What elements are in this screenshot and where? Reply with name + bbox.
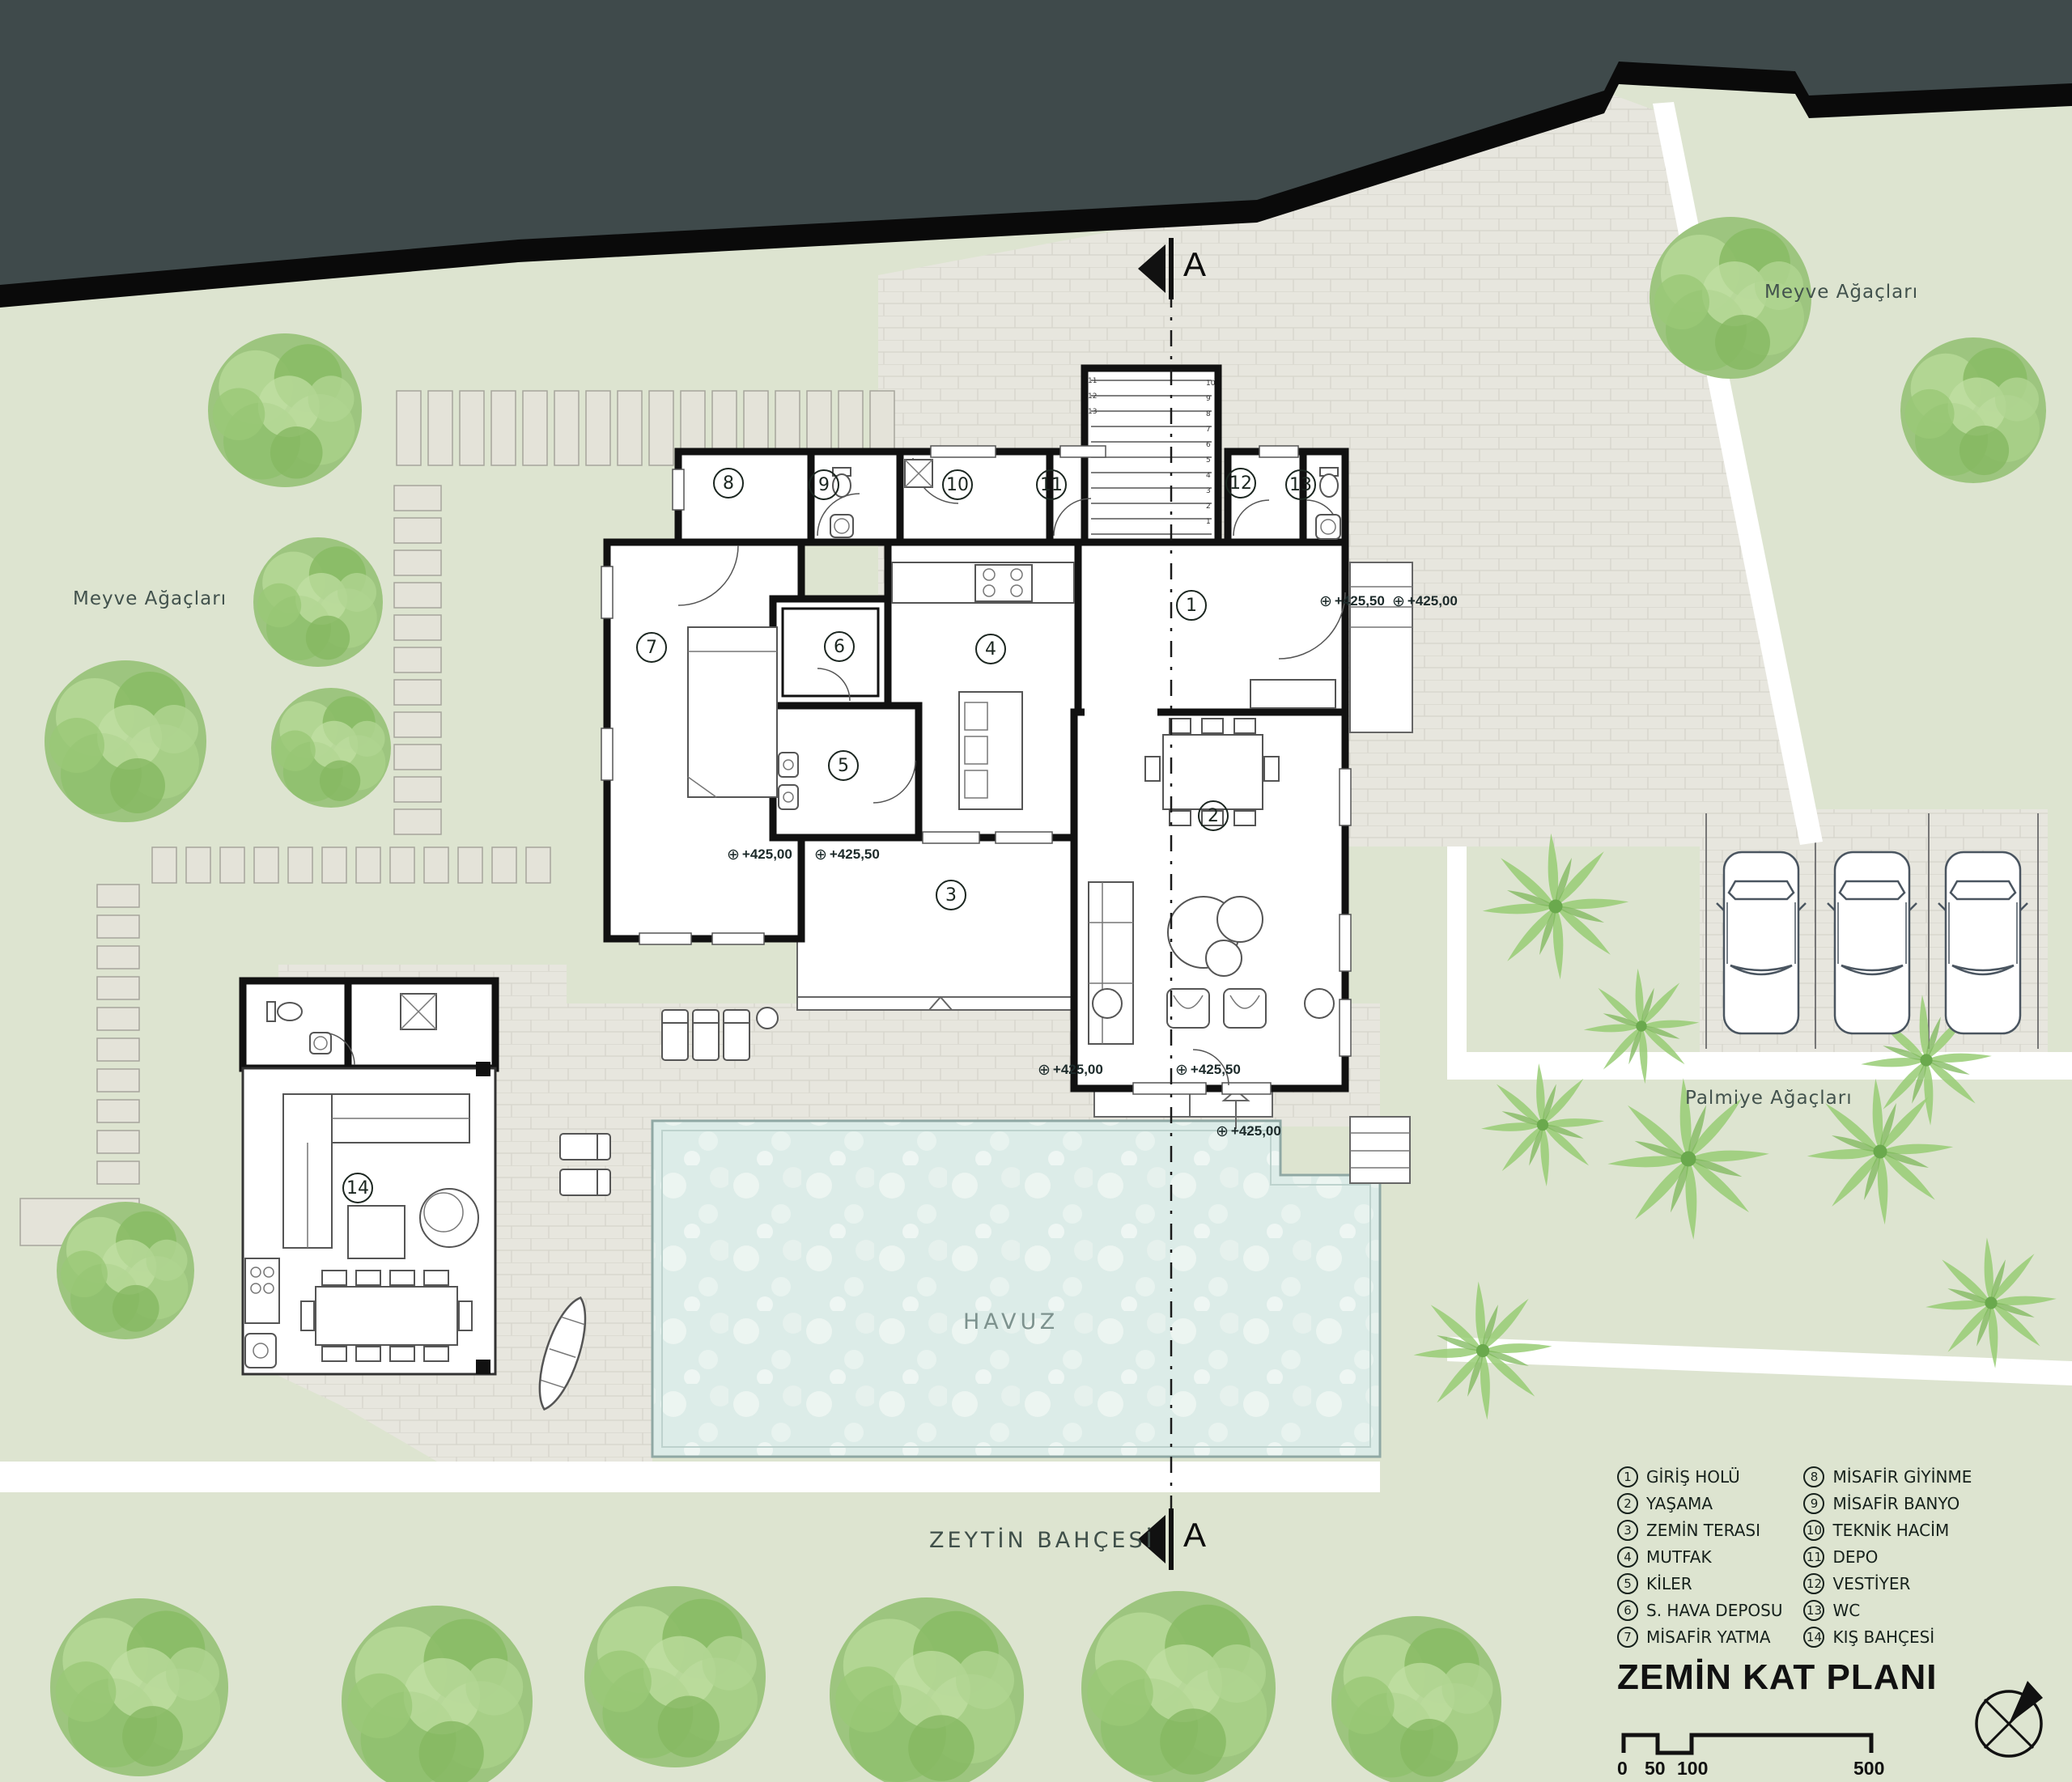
legend-item: 9MİSAFİR BANYO xyxy=(1803,1493,1972,1514)
legend-item: 12VESTİYER xyxy=(1803,1573,1972,1594)
room-circle-12: 12 xyxy=(1225,468,1256,499)
room-number: 12 xyxy=(1229,473,1252,494)
elevation-marker: ⊕+425,50 xyxy=(1319,593,1385,609)
legend-number: 12 xyxy=(1803,1573,1824,1594)
legend-label: MUTFAK xyxy=(1646,1547,1712,1567)
scale-tick-50: 50 xyxy=(1645,1758,1666,1780)
legend-label: YAŞAMA xyxy=(1646,1494,1713,1513)
legend-label: KIŞ BAHÇESİ xyxy=(1832,1627,1934,1647)
scale-tick-500: 500 xyxy=(1853,1758,1884,1780)
legend-label: MİSAFİR GİYİNME xyxy=(1832,1467,1972,1487)
legend-number: 1 xyxy=(1617,1466,1638,1487)
legend-item: 7MİSAFİR YATMA xyxy=(1617,1627,1782,1648)
stair-tread-number: 8 xyxy=(1206,410,1211,418)
stair-tread-numbers: 12345678910111213 xyxy=(1085,371,1218,545)
legend-item: 5KİLER xyxy=(1617,1573,1782,1594)
legend-label: S. HAVA DEPOSU xyxy=(1646,1601,1782,1620)
stair-tread-number: 4 xyxy=(1206,472,1211,480)
stair-tread-number: 13 xyxy=(1088,408,1097,416)
room-circle-5: 5 xyxy=(828,750,859,781)
legend-number: 14 xyxy=(1803,1627,1824,1648)
room-number: 13 xyxy=(1289,475,1312,495)
legend-item: 13WC xyxy=(1803,1600,1972,1621)
legend-item: 6S. HAVA DEPOSU xyxy=(1617,1600,1782,1621)
room-number: 1 xyxy=(1186,596,1197,616)
site-plan-page: { "title": "ZEMİN KAT PLANI", "labels": … xyxy=(0,0,2072,1782)
room-circle-7: 7 xyxy=(636,632,667,663)
room-number: 5 xyxy=(838,756,849,776)
legend-label: MİSAFİR BANYO xyxy=(1832,1494,1959,1513)
legend-number: 7 xyxy=(1617,1627,1638,1648)
room-circle-11: 11 xyxy=(1036,469,1067,500)
room-circle-13: 13 xyxy=(1285,469,1316,500)
legend-item: 10TEKNİK HACİM xyxy=(1803,1520,1972,1541)
room-circle-1: 1 xyxy=(1176,590,1207,621)
stair-tread-number: 11 xyxy=(1088,377,1097,385)
room-circle-8: 8 xyxy=(713,468,744,499)
page-title: ZEMİN KAT PLANI xyxy=(1617,1657,1938,1698)
room-circle-2: 2 xyxy=(1198,800,1229,831)
stair-tread-number: 3 xyxy=(1206,487,1211,495)
stair-tread-number: 10 xyxy=(1206,380,1215,388)
label-palm-trees: Palmiye Ağaçları xyxy=(1685,1088,1853,1109)
label-pool: HAVUZ xyxy=(963,1309,1059,1334)
elevation-target-icon: ⊕ xyxy=(1216,1124,1229,1139)
pool xyxy=(652,1121,1380,1457)
elevation-target-icon: ⊕ xyxy=(1038,1063,1051,1078)
stair-tread-number: 9 xyxy=(1206,395,1211,403)
legend-item: 14KIŞ BAHÇESİ xyxy=(1803,1627,1972,1648)
legend-item: 3ZEMİN TERASI xyxy=(1617,1520,1782,1541)
legend-number: 6 xyxy=(1617,1600,1638,1621)
room-number: 6 xyxy=(834,637,845,657)
scale-tick-0: 0 xyxy=(1617,1758,1628,1780)
label-fruit-trees-left: Meyve Ağaçları xyxy=(73,588,227,609)
legend-item: 11DEPO xyxy=(1803,1547,1972,1568)
stair-tread-number: 12 xyxy=(1088,392,1097,401)
room-number: 10 xyxy=(946,475,969,495)
stair-tread-number: 1 xyxy=(1206,518,1211,526)
legend-item: 8MİSAFİR GİYİNME xyxy=(1803,1466,1972,1487)
elevation-target-icon: ⊕ xyxy=(814,847,827,863)
elevation-target-icon: ⊕ xyxy=(1175,1063,1188,1078)
stair-tread-number: 6 xyxy=(1206,441,1211,449)
legend-label: MİSAFİR YATMA xyxy=(1646,1627,1771,1647)
legend-item: 4MUTFAK xyxy=(1617,1547,1782,1568)
legend-column-left: 1GİRİŞ HOLÜ 2YAŞAMA 3ZEMİN TERASI 4MUTFA… xyxy=(1617,1466,1782,1648)
elevation-value: +425,00 xyxy=(742,846,792,863)
room-circle-4: 4 xyxy=(975,634,1006,664)
section-letter-top: A xyxy=(1183,245,1206,284)
legend: 1GİRİŞ HOLÜ 2YAŞAMA 3ZEMİN TERASI 4MUTFA… xyxy=(1617,1466,1972,1648)
elevation-marker: ⊕+425,00 xyxy=(1216,1123,1281,1139)
legend-label: DEPO xyxy=(1832,1547,1878,1567)
elevation-value: +425,00 xyxy=(1231,1123,1281,1139)
room-number: 2 xyxy=(1208,806,1219,826)
room-circle-14: 14 xyxy=(342,1173,373,1203)
room-number: 11 xyxy=(1040,475,1063,495)
legend-number: 2 xyxy=(1617,1493,1638,1514)
legend-column-right: 8MİSAFİR GİYİNME 9MİSAFİR BANYO 10TEKNİK… xyxy=(1803,1466,1972,1648)
stair-tread-number: 5 xyxy=(1206,456,1211,465)
elevation-value: +425,50 xyxy=(830,846,880,863)
legend-item: 2YAŞAMA xyxy=(1617,1493,1782,1514)
elevation-target-icon: ⊕ xyxy=(1319,594,1332,609)
room-number: 8 xyxy=(723,473,734,494)
elevation-target-icon: ⊕ xyxy=(1392,594,1405,609)
elevation-target-icon: ⊕ xyxy=(727,847,740,863)
room-circle-9: 9 xyxy=(809,469,839,500)
legend-number: 8 xyxy=(1803,1466,1824,1487)
legend-item: 1GİRİŞ HOLÜ xyxy=(1617,1466,1782,1487)
legend-number: 10 xyxy=(1803,1520,1824,1541)
label-fruit-trees-right: Meyve Ağaçları xyxy=(1764,282,1918,303)
room-number: 4 xyxy=(985,639,996,660)
elevation-marker: ⊕+425,50 xyxy=(1175,1062,1241,1078)
legend-label: ZEMİN TERASI xyxy=(1646,1521,1760,1540)
legend-number: 9 xyxy=(1803,1493,1824,1514)
room-number: 3 xyxy=(945,885,957,906)
room-number: 7 xyxy=(646,638,657,658)
room-circle-3: 3 xyxy=(936,880,966,910)
elevation-marker: ⊕+425,00 xyxy=(727,846,792,863)
parked-cars xyxy=(1717,852,2027,1033)
label-olive-garden: ZEYTİN BAHÇESİ xyxy=(929,1528,1156,1553)
scale-tick-100: 100 xyxy=(1677,1758,1708,1780)
elevation-value: +425,50 xyxy=(1191,1062,1241,1078)
legend-label: KİLER xyxy=(1646,1574,1692,1593)
stair-tread-number: 7 xyxy=(1206,426,1211,434)
elevation-marker: ⊕+425,00 xyxy=(1038,1062,1103,1078)
room-circle-6: 6 xyxy=(824,631,855,662)
elevation-value: +425,00 xyxy=(1408,593,1458,609)
legend-number: 3 xyxy=(1617,1520,1638,1541)
elevation-value: +425,50 xyxy=(1335,593,1385,609)
stair-tread-number: 2 xyxy=(1206,503,1211,511)
legend-label: VESTİYER xyxy=(1832,1574,1910,1593)
legend-number: 11 xyxy=(1803,1547,1824,1568)
legend-number: 13 xyxy=(1803,1600,1824,1621)
legend-number: 5 xyxy=(1617,1573,1638,1594)
legend-label: WC xyxy=(1832,1601,1860,1620)
elevation-value: +425,00 xyxy=(1053,1062,1103,1078)
legend-label: GİRİŞ HOLÜ xyxy=(1646,1467,1740,1487)
elevation-marker: ⊕+425,00 xyxy=(1392,593,1458,609)
room-number: 9 xyxy=(818,475,830,495)
section-letter-bottom: A xyxy=(1183,1516,1206,1555)
elevation-marker: ⊕+425,50 xyxy=(814,846,880,863)
room-circle-10: 10 xyxy=(942,469,973,500)
legend-label: TEKNİK HACİM xyxy=(1832,1521,1949,1540)
room-number: 14 xyxy=(346,1178,369,1199)
legend-number: 4 xyxy=(1617,1547,1638,1568)
